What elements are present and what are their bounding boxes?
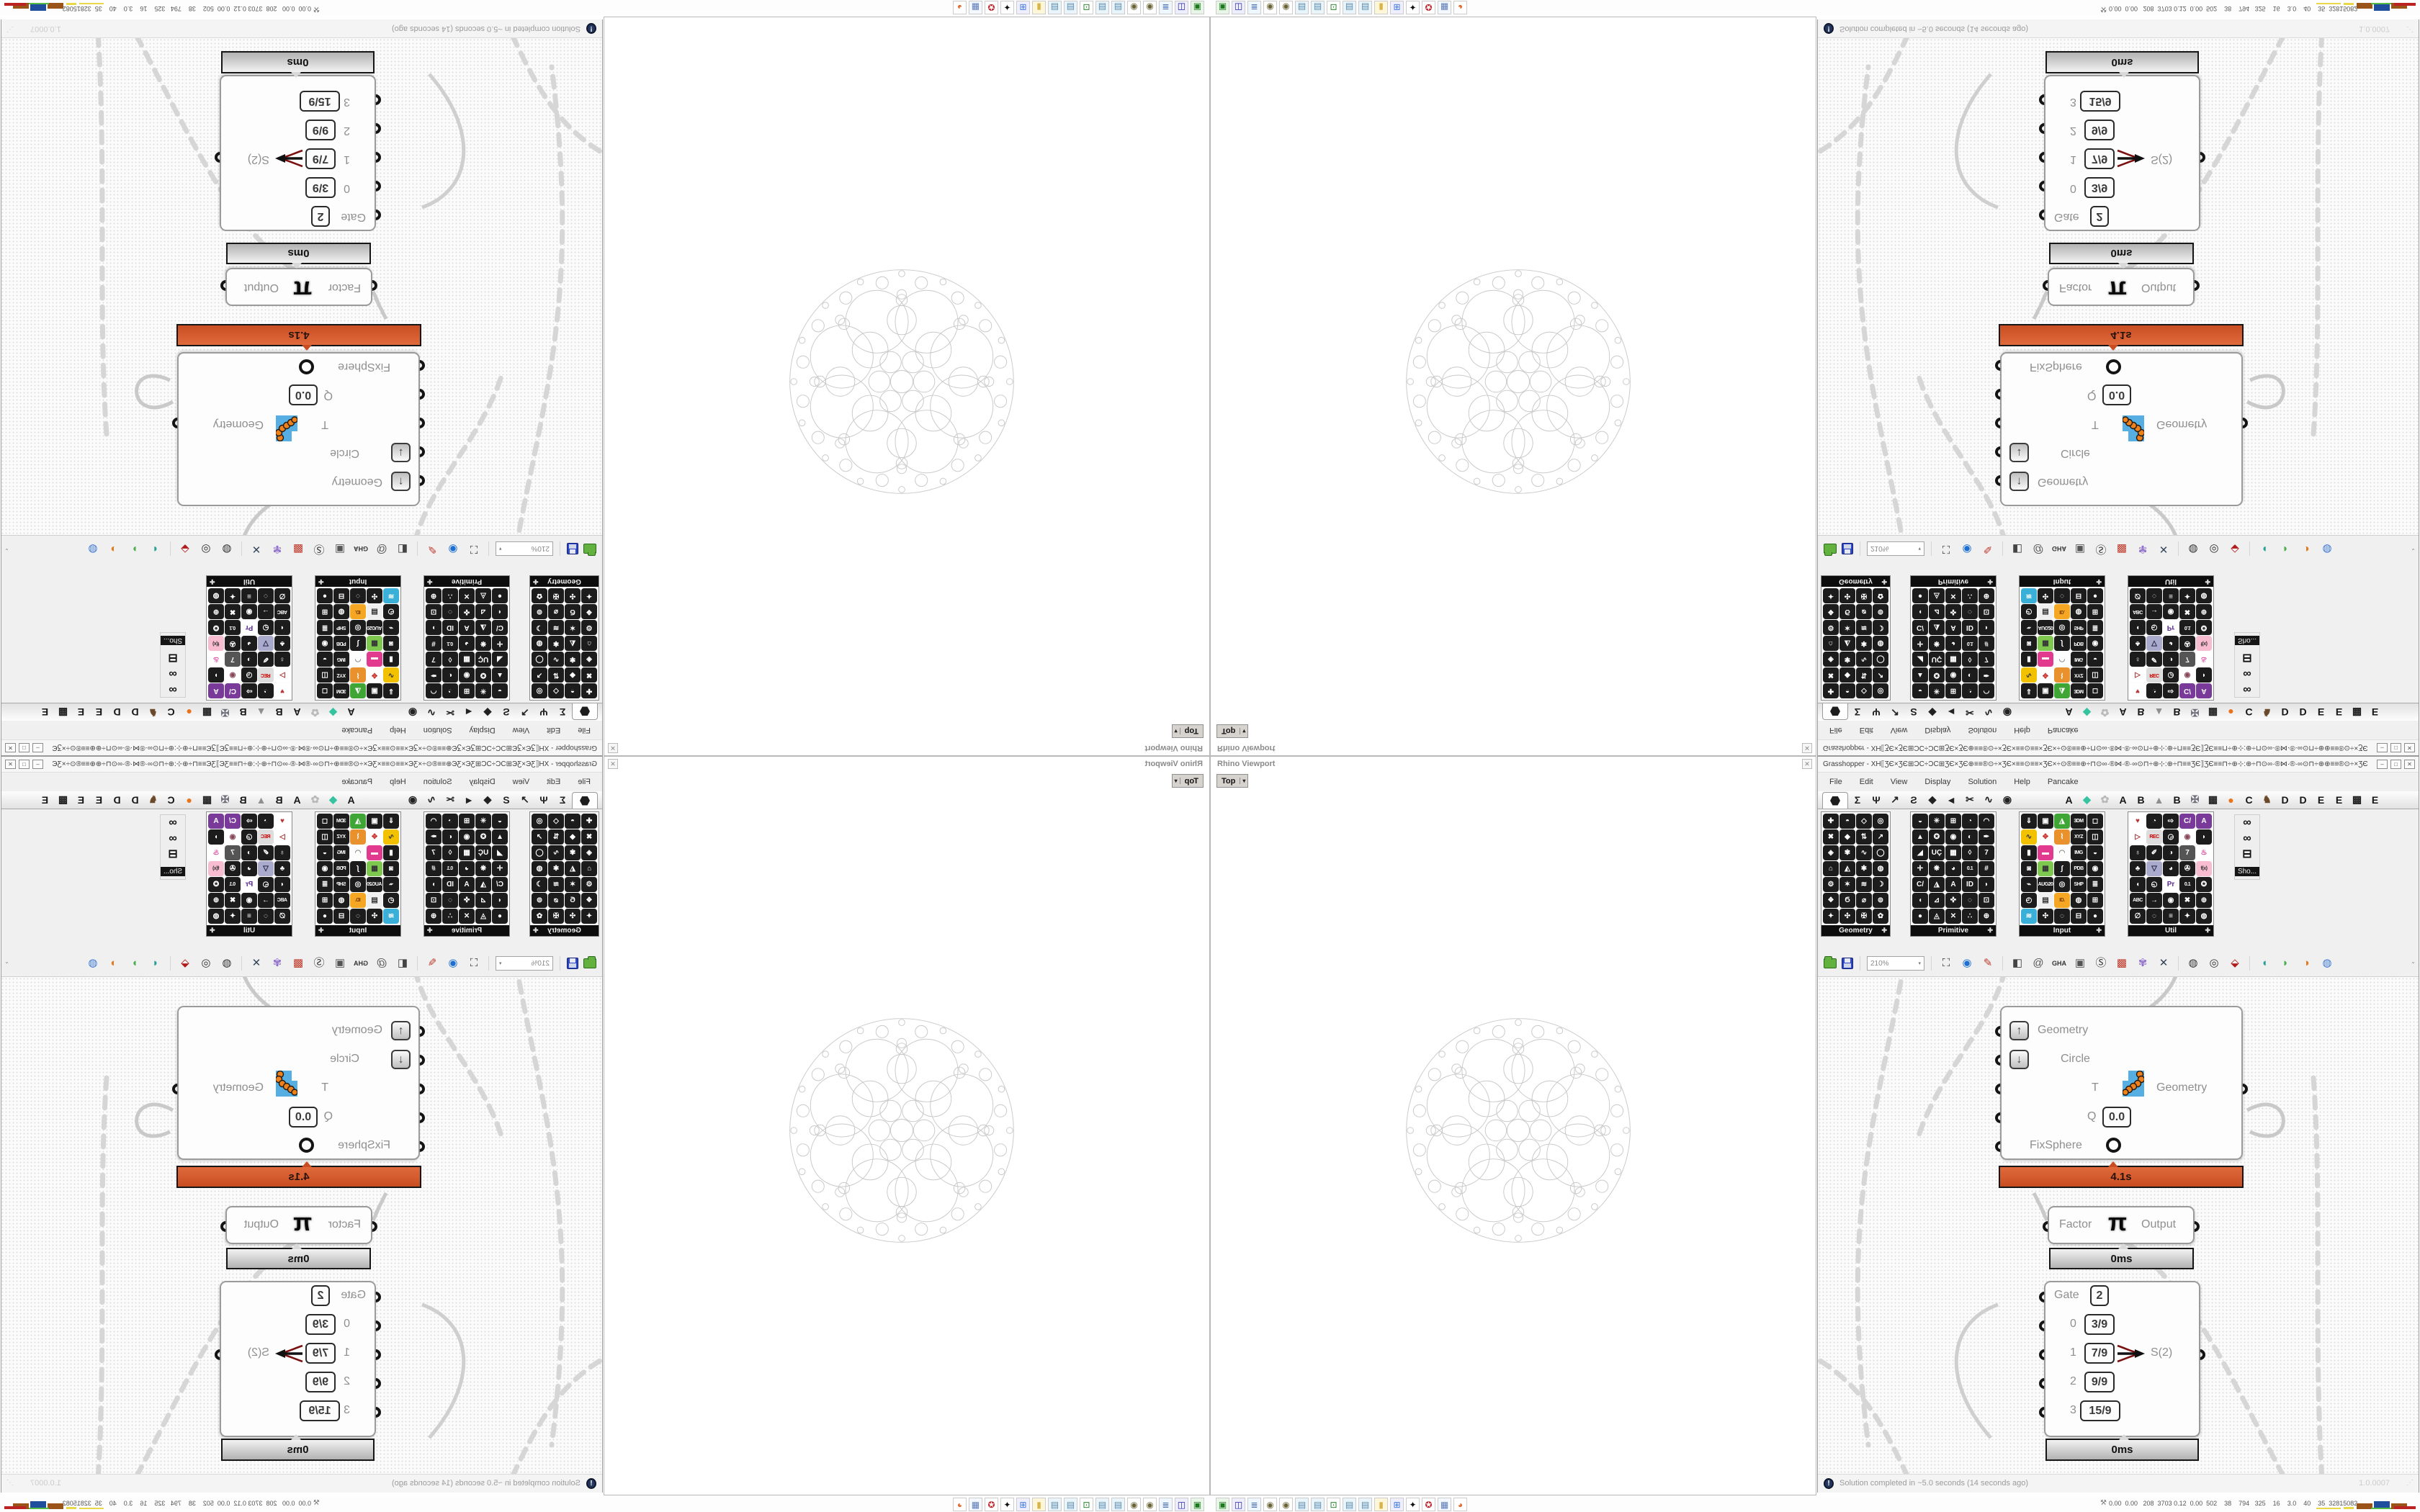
component-icon[interactable]: PDB bbox=[2071, 861, 2087, 876]
component-icon[interactable]: C/ bbox=[2179, 683, 2195, 698]
notepad-icon[interactable]: ▤ bbox=[1295, 1, 1309, 14]
notepad3-icon[interactable]: ▤ bbox=[1064, 1, 1077, 14]
component-icon[interactable]: ◴ bbox=[2021, 893, 2037, 908]
gate-value-box[interactable]: 15/9 bbox=[2080, 1400, 2120, 1421]
component-icon[interactable]: ◠ bbox=[1978, 683, 1994, 698]
menu-display[interactable]: Display bbox=[1924, 726, 1950, 734]
script-icon[interactable]: ≣ bbox=[1247, 1, 1261, 14]
monitor-icon[interactable]: ⊡ bbox=[1080, 1498, 1093, 1511]
component-icon[interactable]: XYZ bbox=[2071, 829, 2087, 845]
component-icon[interactable]: ▣ bbox=[2038, 683, 2053, 698]
save-file-icon[interactable] bbox=[567, 958, 578, 969]
component-icon[interactable]: ⊡ bbox=[1978, 604, 1994, 619]
component-icon[interactable]: ◎ bbox=[532, 683, 547, 698]
zoom-extents-icon[interactable]: ⛶ bbox=[1938, 541, 1954, 557]
component-icon[interactable]: ⌀ bbox=[548, 604, 564, 619]
zoom-level-dropdown[interactable]: 210% ▾ bbox=[1867, 956, 1924, 971]
maximize-button[interactable]: □ bbox=[19, 743, 30, 752]
component-icon[interactable]: ◠ bbox=[426, 683, 442, 698]
component-icon[interactable]: ◒ bbox=[492, 814, 508, 829]
component-icon[interactable]: ⇨ bbox=[2163, 814, 2179, 829]
component-icon[interactable]: Ϭ bbox=[1839, 893, 1855, 908]
component-icon[interactable]: ◍ bbox=[333, 604, 349, 619]
component-icon[interactable]: 0.1 bbox=[225, 877, 241, 892]
tool-tab-icon-4[interactable]: ◆ bbox=[1923, 703, 1942, 719]
grasshopper-canvas[interactable]: ↑ Geometry ↓ Circle T Q 0.0 FixSphere bbox=[1818, 38, 2419, 536]
downstream-button[interactable]: ↓ bbox=[2009, 443, 2029, 462]
palette-title-primitive[interactable]: Primitive✚ bbox=[1911, 576, 1996, 587]
component-icon[interactable]: ☽ bbox=[1873, 620, 1888, 635]
component-icon[interactable]: ⌁ bbox=[383, 620, 399, 635]
goggles-icon[interactable]: ∞ bbox=[2243, 818, 2251, 828]
browser-icon[interactable]: ◕ bbox=[1453, 1498, 1467, 1511]
viewport-dropdown-icon[interactable]: ▾ bbox=[1240, 778, 1247, 784]
plugin-tab-6[interactable]: B bbox=[2168, 703, 2186, 718]
component-icon[interactable]: ◻ bbox=[2087, 814, 2103, 829]
gem-preview-icon[interactable]: ⬙ bbox=[177, 541, 193, 557]
stream-gate-component[interactable]: Gate 2 0 3/9 1 7/9 S(2) 2 9/9 3 bbox=[2044, 75, 2200, 231]
component-icon[interactable]: ✛ bbox=[1912, 636, 1928, 651]
emulator-icon[interactable]: ▣ bbox=[1216, 1, 1229, 14]
component-icon[interactable]: ◆ bbox=[1839, 829, 1855, 845]
plugin-tab-7[interactable]: ✠ bbox=[216, 703, 234, 719]
component-icon[interactable]: ◒ bbox=[1912, 814, 1928, 829]
component-icon[interactable]: ◬ bbox=[1929, 588, 1945, 603]
component-icon[interactable]: ◌ bbox=[2146, 909, 2162, 924]
component-icon[interactable]: ⌂ bbox=[1823, 861, 1839, 876]
coin2-icon[interactable]: ◉ bbox=[1127, 1, 1141, 14]
component-icon[interactable]: ◌ bbox=[442, 893, 458, 908]
component-icon[interactable]: 3DM bbox=[333, 683, 349, 698]
component-icon[interactable]: ◑ bbox=[2163, 845, 2179, 860]
palette-expand-icon[interactable]: ✚ bbox=[1881, 577, 1887, 585]
plugin-tab-11[interactable]: ♞ bbox=[144, 703, 162, 719]
notepad3-icon[interactable]: ▤ bbox=[1064, 1498, 1077, 1511]
component-icon[interactable]: ↗ bbox=[1873, 829, 1888, 845]
component-icon[interactable]: ◗ bbox=[426, 620, 442, 635]
component-icon[interactable]: ⊕ bbox=[426, 909, 442, 924]
component-icon[interactable]: ◍ bbox=[2196, 909, 2212, 924]
component-icon[interactable]: ◵ bbox=[258, 620, 274, 635]
component-icon[interactable]: ⌀ bbox=[1856, 893, 1872, 908]
find-icon[interactable]: Ⓢ bbox=[311, 541, 327, 557]
palette-title-primitive[interactable]: Primitive✚ bbox=[424, 576, 509, 587]
resize-grip[interactable]: ⋰ bbox=[6, 25, 14, 33]
component-icon[interactable]: ◗ bbox=[2196, 667, 2212, 683]
menu-help[interactable]: Help bbox=[2014, 778, 2030, 786]
input-jack-0[interactable] bbox=[2039, 181, 2050, 192]
component-icon[interactable]: ◑ bbox=[2163, 652, 2179, 667]
tool-tab-icon-4[interactable]: ◆ bbox=[478, 793, 497, 809]
pi-component[interactable]: Factor π Output bbox=[225, 268, 372, 306]
surprise-box-icon[interactable]: ▩ bbox=[290, 541, 306, 557]
grasshopper-titlebar[interactable]: Grasshopper - XH⟦ƷЄ×ƷЄ⊞ƆϹ÷ƆϹ⊞ƷЄ×ƷЄ⊕≡≡®⊙÷… bbox=[1818, 757, 2419, 773]
maximize-button[interactable]: □ bbox=[2390, 760, 2401, 769]
component-icon[interactable]: ▣ bbox=[367, 814, 382, 829]
component-icon[interactable]: ◠ bbox=[350, 652, 366, 667]
q-value-box[interactable]: 0.0 bbox=[289, 384, 318, 405]
plugin-tab-15[interactable]: E bbox=[72, 794, 90, 809]
component-icon[interactable]: ◈ bbox=[581, 845, 597, 860]
component-icon[interactable]: ◖ bbox=[274, 620, 290, 635]
component-icon[interactable]: A bbox=[459, 877, 475, 892]
menu-solution[interactable]: Solution bbox=[1968, 726, 1996, 734]
input-jack-circle[interactable] bbox=[1995, 1055, 2006, 1066]
component-icon[interactable]: ⇓ bbox=[383, 814, 399, 829]
wire-pen-icon[interactable]: ✎ bbox=[424, 541, 440, 557]
menu-view[interactable]: View bbox=[1891, 778, 1908, 786]
tool-tab-icon-7[interactable]: ∿ bbox=[1979, 703, 1998, 719]
component-icon[interactable]: ✣ bbox=[2038, 588, 2053, 603]
component-icon[interactable]: ▦ bbox=[2038, 861, 2053, 876]
component-icon[interactable]: ▤ bbox=[2038, 604, 2053, 619]
tool-tab-icon-7[interactable]: ∿ bbox=[422, 703, 441, 719]
upstream-button[interactable]: ↑ bbox=[391, 472, 411, 491]
input-jack-gate[interactable] bbox=[2039, 1292, 2050, 1302]
component-icon[interactable]: ▤ bbox=[367, 893, 382, 908]
menu-pancake[interactable]: Pancake bbox=[341, 726, 372, 734]
palette-expand-icon[interactable]: ✚ bbox=[210, 927, 215, 935]
component-icon[interactable]: ◔ bbox=[2146, 814, 2162, 829]
component-icon[interactable]: ◙ bbox=[2021, 636, 2037, 651]
component-icon[interactable]: ◕ bbox=[241, 861, 257, 876]
component-icon[interactable]: ✦ bbox=[581, 909, 597, 924]
stream-gate-component[interactable]: Gate 2 0 3/9 1 7/9 S(2) 2 9/9 3 bbox=[220, 1281, 376, 1437]
notepad-icon[interactable]: ▤ bbox=[1295, 1498, 1309, 1511]
component-icon[interactable]: ⊚ bbox=[1873, 893, 1888, 908]
component-icon[interactable]: ⌇ bbox=[2054, 667, 2070, 683]
grasshopper-canvas[interactable]: ↑ Geometry ↓ Circle T Q 0.0 FixSphere bbox=[1, 976, 602, 1474]
component-icon[interactable]: Pr bbox=[241, 620, 257, 635]
screen-icon[interactable]: ⊟ bbox=[2242, 850, 2251, 860]
chevron-down-icon[interactable]: ▾ bbox=[499, 546, 502, 552]
plugin-tab-12[interactable]: D bbox=[126, 794, 144, 809]
plugin-tab-14[interactable]: E bbox=[2312, 703, 2330, 718]
component-icon[interactable]: ◭ bbox=[1839, 861, 1855, 876]
component-icon[interactable]: 0.1 bbox=[2179, 620, 2195, 635]
plugin-tab-10[interactable]: C bbox=[2240, 794, 2258, 809]
input-jack-2[interactable] bbox=[2039, 1378, 2050, 1389]
component-icon[interactable]: ✶ bbox=[565, 877, 581, 892]
plugin-tab-11[interactable]: ♞ bbox=[2258, 793, 2276, 809]
component-icon[interactable]: ID. bbox=[350, 893, 366, 908]
component-icon[interactable]: ◫ bbox=[2087, 829, 2103, 845]
q-value-box[interactable]: 0.0 bbox=[289, 1107, 318, 1128]
component-icon[interactable]: ▤ bbox=[367, 604, 382, 619]
component-icon[interactable]: ◭ bbox=[1839, 636, 1855, 651]
minimize-button[interactable]: – bbox=[2377, 760, 2388, 769]
component-icon[interactable]: ⌁ bbox=[383, 877, 399, 892]
tool-tab-icon-4[interactable]: ◆ bbox=[478, 703, 497, 719]
plugin-tab-3[interactable]: A bbox=[2114, 794, 2132, 809]
input-jack-gate[interactable] bbox=[2039, 210, 2050, 220]
component-icon[interactable]: ❋ bbox=[1929, 861, 1945, 876]
component-icon[interactable]: f(x) bbox=[2196, 636, 2212, 651]
input-jack-fixsphere[interactable] bbox=[1995, 360, 2006, 371]
component-icon[interactable]: ◠ bbox=[1978, 814, 1994, 829]
gem-preview-icon[interactable]: ⬙ bbox=[2227, 541, 2243, 557]
component-icon[interactable]: ⌇ bbox=[350, 829, 366, 845]
menu-edit[interactable]: Edit bbox=[1860, 726, 1873, 734]
component-icon[interactable]: ◍ bbox=[208, 909, 224, 924]
rhino-close-icon[interactable]: ✕ bbox=[608, 759, 618, 769]
find-icon[interactable]: Ⓢ bbox=[2093, 541, 2109, 557]
component-icon[interactable]: ▦ bbox=[1945, 652, 1961, 667]
viewport-dropdown-icon[interactable]: ▾ bbox=[1173, 728, 1180, 734]
component-icon[interactable]: ◐ bbox=[442, 667, 458, 683]
menu-solution[interactable]: Solution bbox=[423, 778, 452, 786]
input-jack-0[interactable] bbox=[370, 181, 381, 192]
component-icon[interactable]: ◉ bbox=[1945, 667, 1961, 683]
blob-blue-icon[interactable]: ◍ bbox=[2319, 541, 2335, 557]
component-icon[interactable]: ≡ bbox=[2163, 909, 2179, 924]
component-icon[interactable]: ≣ bbox=[317, 877, 333, 892]
component-icon[interactable]: ID. bbox=[350, 604, 366, 619]
input-jack-t[interactable] bbox=[414, 418, 425, 428]
component-icon[interactable]: ⊕ bbox=[208, 893, 224, 908]
component-icon[interactable]: ▲ bbox=[492, 829, 508, 845]
plugin-tab-13[interactable]: D bbox=[108, 703, 126, 718]
zoom-level-dropdown[interactable]: 210% ▾ bbox=[1867, 541, 1924, 556]
component-icon[interactable]: ✾ bbox=[1839, 652, 1855, 667]
component-icon[interactable]: ◠ bbox=[2054, 652, 2070, 667]
plugin-tab-4[interactable]: B bbox=[270, 794, 288, 809]
palette-title-input[interactable]: Input✚ bbox=[315, 576, 400, 587]
calculator-icon[interactable]: ▦ bbox=[1438, 1498, 1451, 1511]
component-icon[interactable]: ✾ bbox=[565, 845, 581, 860]
component-icon[interactable]: ◢ bbox=[492, 652, 508, 667]
component-icon[interactable]: ∿ bbox=[548, 845, 564, 860]
plugin-tab-9[interactable]: ● bbox=[2222, 703, 2240, 718]
chevron-down-icon[interactable]: ▾ bbox=[499, 960, 502, 966]
output-jack-s2[interactable] bbox=[2195, 152, 2205, 163]
component-icon[interactable]: ≋ bbox=[1856, 877, 1872, 892]
component-icon[interactable]: ✾ bbox=[1839, 845, 1855, 860]
monitor-icon[interactable]: ⊡ bbox=[1080, 1, 1093, 14]
component-icon[interactable]: IMG bbox=[333, 652, 349, 667]
component-icon[interactable]: ✛ bbox=[1912, 861, 1928, 876]
component-icon[interactable]: 0.1 bbox=[442, 861, 458, 876]
component-icon[interactable]: ✦ bbox=[2179, 909, 2195, 924]
component-icon[interactable]: ∫ bbox=[2054, 861, 2070, 876]
component-icon[interactable]: ◒ bbox=[2087, 845, 2103, 860]
wire-pen-icon[interactable]: ✎ bbox=[1980, 541, 1996, 557]
component-icon[interactable]: ↗ bbox=[1873, 667, 1888, 683]
plugin-tab-6[interactable]: B bbox=[234, 794, 252, 809]
plugin-tab-0[interactable]: A bbox=[2060, 794, 2078, 809]
capture-icon[interactable]: ▣ bbox=[332, 541, 348, 557]
palette-title-util[interactable]: Util✚ bbox=[2128, 925, 2213, 936]
component-icon[interactable]: ◉ bbox=[459, 829, 475, 845]
component-icon[interactable]: ◗ bbox=[208, 667, 224, 683]
component-icon[interactable]: ◔ bbox=[442, 683, 458, 698]
component-icon[interactable]: ✪ bbox=[1929, 829, 1945, 845]
component-icon[interactable]: ◒ bbox=[2087, 652, 2103, 667]
goggles2-icon[interactable]: ∞ bbox=[2243, 668, 2251, 678]
tool-tab-icon-3[interactable]: Ƨ bbox=[497, 794, 516, 809]
plugin-tab-17[interactable]: E bbox=[36, 703, 54, 718]
input-jack-2[interactable] bbox=[370, 1378, 381, 1389]
rhino-close-icon[interactable]: ✕ bbox=[608, 743, 618, 753]
blob-green-icon[interactable]: ◗ bbox=[2277, 955, 2293, 971]
plugin-tab-2[interactable]: ✿ bbox=[2096, 703, 2114, 719]
plugin-tab-5[interactable]: ▲ bbox=[2150, 794, 2168, 809]
blob-blue-icon[interactable]: ◍ bbox=[85, 955, 101, 971]
zoom-level-dropdown[interactable]: 210% ▾ bbox=[496, 956, 553, 971]
plugin-tab-6[interactable]: B bbox=[234, 703, 252, 718]
gate-value-box[interactable]: 15/9 bbox=[300, 91, 340, 112]
component-icon[interactable]: 0.1 bbox=[442, 636, 458, 651]
component-icon[interactable]: ⌁ bbox=[2021, 877, 2037, 892]
component-icon[interactable]: ◠ bbox=[2054, 845, 2070, 860]
component-icon[interactable]: ✒ bbox=[426, 667, 442, 683]
component-icon[interactable]: ∿ bbox=[2021, 829, 2037, 845]
component-icon[interactable]: ∿ bbox=[1856, 845, 1872, 860]
browser-icon[interactable]: ◕ bbox=[1453, 1, 1467, 14]
component-icon[interactable]: ⇅ bbox=[548, 667, 564, 683]
component-icon[interactable]: C/ bbox=[492, 877, 508, 892]
preview-eye-icon[interactable]: ◉ bbox=[445, 955, 461, 971]
component-icon[interactable]: ▽ bbox=[2146, 636, 2162, 651]
gate-value-box[interactable]: 2 bbox=[311, 1285, 330, 1306]
component-icon[interactable]: ⊕ bbox=[1978, 909, 1994, 924]
input-jack-circle[interactable] bbox=[1995, 446, 2006, 457]
tool-tab-icon-1[interactable]: Ψ bbox=[534, 794, 553, 809]
component-icon[interactable]: ◯ bbox=[1873, 845, 1888, 860]
component-icon[interactable]: ◆ bbox=[565, 829, 581, 845]
component-icon[interactable]: # bbox=[1978, 636, 1994, 651]
plugin-tab-13[interactable]: D bbox=[108, 794, 126, 809]
script-icon[interactable]: ≣ bbox=[1159, 1498, 1173, 1511]
coin2-icon[interactable]: ◉ bbox=[1127, 1498, 1141, 1511]
component-icon[interactable]: ✥ bbox=[367, 667, 382, 683]
component-icon[interactable]: ⊚ bbox=[532, 893, 547, 908]
component-icon[interactable]: ▦ bbox=[1945, 845, 1961, 860]
component-icon[interactable]: ⌂ bbox=[581, 636, 597, 651]
tool-tab-icon-3[interactable]: Ƨ bbox=[497, 703, 516, 718]
component-icon[interactable]: ▦ bbox=[459, 652, 475, 667]
component-icon[interactable]: Ϭ bbox=[565, 604, 581, 619]
plugin-tab-14[interactable]: E bbox=[90, 703, 108, 718]
plugin-tab-16[interactable]: ▩ bbox=[54, 793, 72, 809]
plugin-tab-1[interactable]: ◆ bbox=[2078, 793, 2096, 809]
component-icon[interactable]: ◵ bbox=[2146, 877, 2162, 892]
component-icon[interactable]: ✜ bbox=[1945, 604, 1961, 619]
palette-title-geometry[interactable]: Geometry✚ bbox=[1821, 576, 1890, 587]
viewport-label[interactable]: Top bbox=[1180, 777, 1203, 786]
component-icon[interactable]: ⌀ bbox=[548, 893, 564, 908]
input-jack-3[interactable] bbox=[2039, 1407, 2050, 1418]
component-icon[interactable]: ♁ bbox=[2130, 652, 2146, 667]
output-jack-output[interactable] bbox=[220, 1221, 231, 1232]
component-icon[interactable]: ⊞ bbox=[2087, 893, 2103, 908]
menu-help[interactable]: Help bbox=[2014, 726, 2030, 734]
save-file-icon[interactable] bbox=[1842, 958, 1853, 969]
toolbar-overflow-icon[interactable]: ⌄ bbox=[2411, 958, 2416, 965]
resize-grip[interactable]: ⋰ bbox=[6, 1479, 14, 1487]
component-icon[interactable]: ◉ bbox=[459, 667, 475, 683]
component-icon[interactable]: XYZ bbox=[333, 829, 349, 845]
component-icon[interactable]: ⊟ bbox=[2071, 909, 2087, 924]
plugin-tab-7[interactable]: ✠ bbox=[2186, 703, 2204, 719]
component-icon[interactable]: ❖ bbox=[1823, 893, 1839, 908]
component-icon[interactable]: 7 bbox=[1978, 845, 1994, 860]
component-icon[interactable]: ☽ bbox=[532, 877, 547, 892]
component-icon[interactable]: ▲ bbox=[1912, 667, 1928, 683]
palette-title-input[interactable]: Input✚ bbox=[2020, 925, 2105, 936]
component-icon[interactable]: A bbox=[2196, 683, 2212, 698]
component-icon[interactable]: ◢ bbox=[492, 845, 508, 860]
transform-component[interactable]: ↑ Geometry ↓ Circle T Q 0.0 FixSphere bbox=[2000, 1006, 2243, 1160]
component-icon[interactable]: ∅ bbox=[274, 909, 290, 924]
component-icon[interactable]: ◗ bbox=[208, 829, 224, 845]
fixsphere-toggle[interactable] bbox=[299, 359, 314, 374]
component-icon[interactable]: ◉ bbox=[2087, 861, 2103, 876]
component-icon[interactable]: ◻ bbox=[2087, 683, 2103, 698]
component-icon[interactable]: ▣ bbox=[367, 683, 382, 698]
component-icon[interactable]: ✥ bbox=[367, 829, 382, 845]
menu-view[interactable]: View bbox=[513, 778, 530, 786]
component-icon[interactable]: ✿ bbox=[532, 909, 547, 924]
blob-orange-icon[interactable]: ◑ bbox=[106, 541, 122, 557]
component-icon[interactable]: ✇ bbox=[2179, 861, 2195, 876]
component-icon[interactable]: ◕ bbox=[1945, 636, 1961, 651]
component-icon[interactable]: ≡ bbox=[241, 588, 257, 603]
menu-pancake[interactable]: Pancake bbox=[2048, 726, 2079, 734]
hint-balloon-icon[interactable]: ✾ bbox=[269, 541, 285, 557]
component-icon[interactable]: f(x) bbox=[208, 861, 224, 876]
component-icon[interactable]: PDB bbox=[333, 636, 349, 651]
component-icon[interactable]: ◙ bbox=[2021, 861, 2037, 876]
plugin-tab-15[interactable]: E bbox=[2330, 703, 2348, 718]
component-icon[interactable]: ⊞ bbox=[2087, 604, 2103, 619]
tool-tab-icon-5[interactable]: ◄ bbox=[460, 794, 478, 809]
component-icon[interactable]: ◆ bbox=[565, 667, 581, 683]
blob-teal-icon[interactable]: ◖ bbox=[2257, 541, 2272, 557]
notepad2-icon[interactable]: ▤ bbox=[1311, 1, 1325, 14]
blob-orange-icon[interactable]: ◑ bbox=[2298, 955, 2314, 971]
component-icon[interactable]: ⊕ bbox=[2196, 893, 2212, 908]
viewport-label-button[interactable]: Top ▾ bbox=[1172, 724, 1204, 738]
component-icon[interactable]: ⊞ bbox=[1945, 814, 1961, 829]
component-icon[interactable]: ◬ bbox=[1929, 909, 1945, 924]
component-icon[interactable]: ✳ bbox=[475, 683, 491, 698]
component-icon[interactable]: ✚ bbox=[1823, 683, 1839, 698]
plugin-tab-2[interactable]: ✿ bbox=[2096, 793, 2114, 809]
component-icon[interactable]: ▦ bbox=[459, 845, 475, 860]
menu-display[interactable]: Display bbox=[1924, 778, 1950, 786]
component-icon[interactable]: ⊿ bbox=[475, 604, 491, 619]
component-icon[interactable]: ◭ bbox=[565, 636, 581, 651]
component-icon[interactable]: ✪ bbox=[475, 829, 491, 845]
coin-icon[interactable]: ◉ bbox=[1263, 1498, 1277, 1511]
calculator-icon[interactable]: ▦ bbox=[969, 1, 982, 14]
component-icon[interactable]: ● bbox=[492, 909, 508, 924]
component-icon[interactable]: ⊕ bbox=[208, 604, 224, 619]
surprise-box-icon[interactable]: ▩ bbox=[2114, 955, 2130, 971]
palette-expand-icon[interactable]: ✚ bbox=[318, 577, 324, 585]
component-icon[interactable]: ✖ bbox=[2179, 604, 2195, 619]
component-icon[interactable]: AUG20 bbox=[367, 877, 382, 892]
grasshopper-canvas[interactable]: ↑ Geometry ↓ Circle T Q 0.0 FixSphere bbox=[1, 38, 602, 536]
gate-value-box[interactable]: 3/9 bbox=[2084, 177, 2115, 198]
component-icon[interactable]: ✣ bbox=[367, 588, 382, 603]
component-icon[interactable]: ✐ bbox=[258, 652, 274, 667]
component-icon[interactable]: AUG20 bbox=[367, 620, 382, 635]
input-jack-q[interactable] bbox=[1995, 1112, 2006, 1123]
component-icon[interactable]: ⊚ bbox=[532, 604, 547, 619]
tab-params-selected[interactable] bbox=[572, 703, 598, 720]
